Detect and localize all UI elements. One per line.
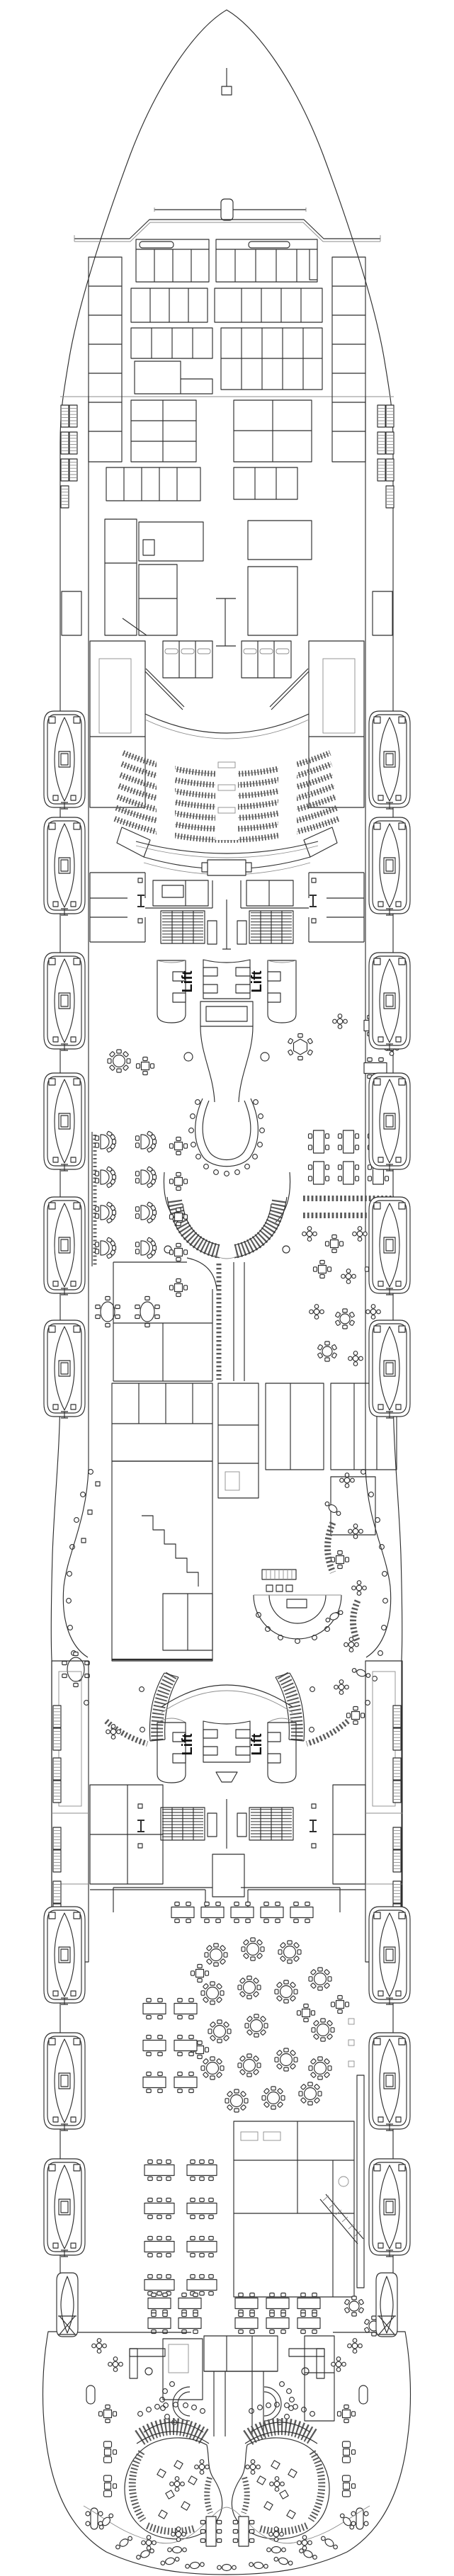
bulge-promenade-port — [62, 1470, 147, 1744]
atrium-staircase — [164, 1099, 290, 1259]
lift-label: Lift — [249, 970, 265, 992]
restaurant-port — [92, 1050, 188, 1327]
lift-label: Lift — [180, 1733, 195, 1755]
liferafts-port — [61, 405, 77, 508]
lift-lobby-forward: Lift Lift — [157, 960, 296, 1102]
lounge-starboard — [288, 1014, 399, 1366]
liferafts-starboard — [378, 405, 394, 508]
stern-side-seating — [84, 2405, 370, 2571]
stair-hall-forward — [90, 873, 364, 949]
stair-hall-aft — [90, 1785, 365, 1912]
bridge — [74, 220, 380, 242]
lift-label: Lift — [180, 970, 195, 992]
shops-midship — [112, 1383, 397, 1661]
lift-label: Lift — [249, 1733, 265, 1755]
cabins-forward — [62, 239, 392, 646]
curved-stairs-midship — [140, 1673, 315, 1741]
buffet-aft-tables — [148, 2293, 384, 2337]
tenders-stern — [57, 2273, 397, 2337]
deck-plan-canvas: Lift Lift — [0, 0, 454, 2576]
dining-room — [90, 1890, 365, 2112]
galley — [144, 2019, 364, 2297]
mid-corridor — [113, 1258, 244, 1381]
deck-plan-page: Lift Lift — [0, 0, 454, 2576]
bow-mast — [154, 199, 306, 220]
theatre-seating — [115, 747, 339, 840]
stern-bars — [160, 2382, 295, 2425]
lifeboats-port — [44, 711, 85, 2257]
hull-outline — [43, 10, 411, 2575]
lift-lobby-mid: Lift Lift — [157, 1718, 296, 1783]
